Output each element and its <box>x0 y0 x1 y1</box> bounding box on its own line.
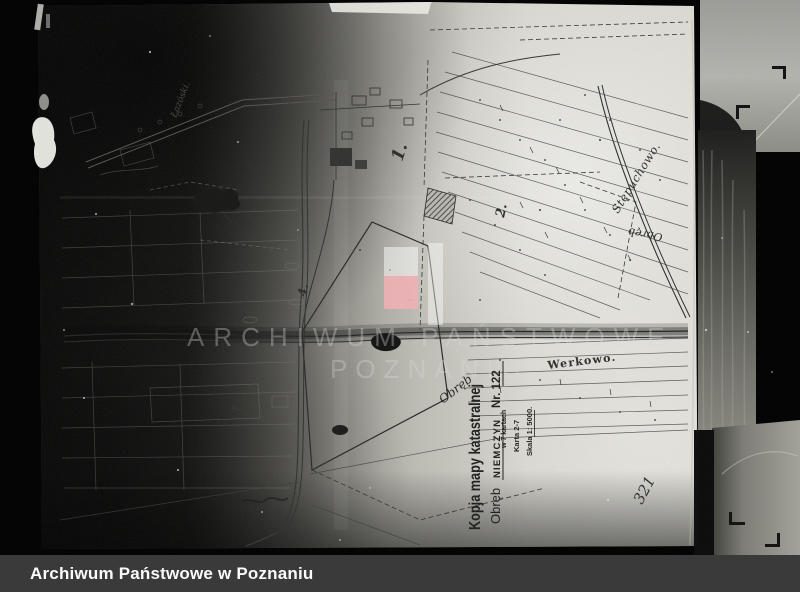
archival-photo: Stępuchowo. Obręb Werkowo. Obręb Łazóski… <box>0 0 800 555</box>
paper-grain <box>38 0 698 550</box>
archive-caption-bar: Archiwum Państwowe w Poznaniu <box>0 555 800 592</box>
archival-scan-viewer: Stępuchowo. Obręb Werkowo. Obręb Łazóski… <box>0 0 800 592</box>
archive-caption: Archiwum Państwowe w Poznaniu <box>0 555 314 592</box>
